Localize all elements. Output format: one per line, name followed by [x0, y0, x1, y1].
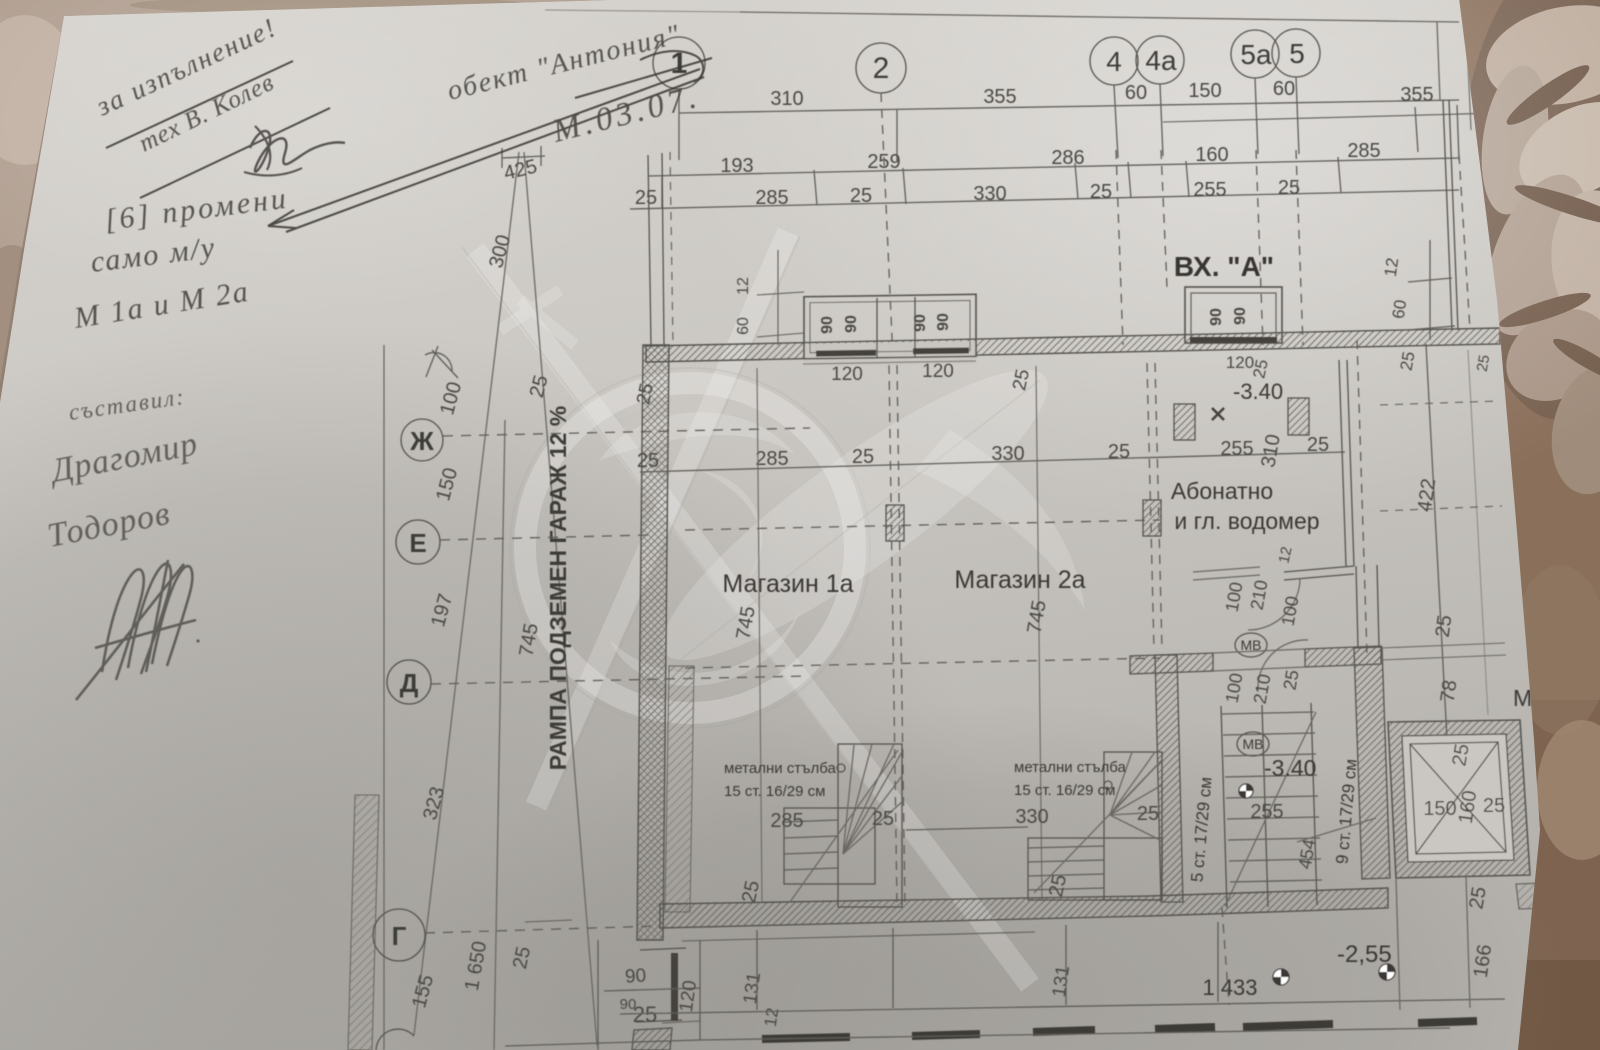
- svg-text:25: 25: [633, 381, 658, 406]
- svg-text:285: 285: [770, 810, 803, 832]
- svg-text:25: 25: [633, 1002, 657, 1027]
- svg-text:285: 285: [755, 448, 788, 470]
- svg-text:60: 60: [1125, 82, 1147, 104]
- svg-text:Д: Д: [400, 668, 419, 698]
- svg-text:Е: Е: [409, 528, 426, 558]
- svg-text:25: 25: [635, 187, 657, 209]
- svg-text:12: 12: [761, 1007, 782, 1028]
- svg-text:286: 286: [1051, 147, 1084, 169]
- svg-text:160: 160: [1195, 144, 1228, 166]
- svg-text:2: 2: [873, 52, 890, 85]
- svg-text:330: 330: [991, 443, 1024, 465]
- svg-text:60: 60: [1389, 299, 1410, 320]
- svg-text:60: 60: [1273, 78, 1295, 100]
- svg-text:Г: Г: [392, 921, 407, 951]
- svg-text:4а: 4а: [1145, 45, 1177, 76]
- svg-text:-3.40: -3.40: [1233, 379, 1283, 404]
- svg-text:5а: 5а: [1240, 39, 1272, 70]
- svg-text:90: 90: [935, 313, 952, 331]
- svg-text:25: 25: [1009, 367, 1034, 392]
- svg-text:255: 255: [1193, 179, 1226, 201]
- svg-text:60: 60: [735, 317, 752, 335]
- svg-text:25: 25: [738, 879, 764, 905]
- svg-text:25: 25: [1090, 181, 1112, 203]
- svg-text:Магазин 1а: Магазин 1а: [722, 570, 853, 598]
- svg-text:ВХ. "А": ВХ. "А": [1174, 251, 1274, 282]
- svg-text:131: 131: [1049, 964, 1074, 998]
- svg-text:25: 25: [1465, 885, 1491, 911]
- svg-text:15 ст. 16/29 см: 15 ст. 16/29 см: [1014, 782, 1115, 799]
- svg-text:422: 422: [1414, 477, 1440, 513]
- svg-text:25: 25: [872, 808, 894, 830]
- svg-text:90: 90: [819, 316, 836, 334]
- svg-text:150: 150: [1423, 798, 1456, 820]
- svg-text:1 433: 1 433: [1202, 975, 1257, 1000]
- svg-text:150: 150: [1188, 80, 1221, 102]
- svg-text:330: 330: [973, 183, 1006, 205]
- svg-text:Ж: Ж: [409, 426, 434, 456]
- svg-text:4: 4: [1106, 46, 1122, 77]
- svg-text:78: 78: [1437, 679, 1462, 704]
- svg-text:25: 25: [1045, 873, 1071, 899]
- svg-text:90: 90: [1208, 308, 1225, 326]
- svg-text:120: 120: [676, 979, 701, 1013]
- svg-text:25: 25: [1137, 803, 1159, 825]
- svg-text:МВ: МВ: [1243, 736, 1264, 752]
- svg-text:Абонатно: Абонатно: [1171, 478, 1273, 504]
- svg-text:355: 355: [983, 86, 1016, 108]
- svg-text:15 ст. 16/29 см: 15 ст. 16/29 см: [724, 783, 825, 800]
- svg-text:25: 25: [1483, 795, 1505, 817]
- svg-text:25: 25: [1307, 434, 1329, 456]
- svg-text:метални стълба: метални стълба: [724, 760, 837, 777]
- svg-text:355: 355: [1400, 84, 1433, 106]
- svg-text:25: 25: [1280, 668, 1303, 691]
- svg-text:330: 330: [1015, 806, 1048, 828]
- svg-text:-2,55: -2,55: [1337, 941, 1392, 968]
- svg-text:12: 12: [735, 277, 752, 295]
- svg-text:и гл. водомер: и гл. водомер: [1174, 508, 1319, 534]
- svg-text:12: 12: [1276, 545, 1296, 565]
- svg-text:-3.40: -3.40: [1264, 755, 1316, 781]
- svg-text:285: 285: [755, 187, 788, 209]
- svg-text:90: 90: [1232, 307, 1249, 325]
- svg-text:25: 25: [1432, 614, 1457, 639]
- svg-text:25: 25: [1249, 358, 1272, 380]
- svg-text:25: 25: [1108, 441, 1130, 463]
- svg-text:метални стълба: метални стълба: [1014, 759, 1127, 776]
- svg-text:90: 90: [912, 314, 929, 332]
- svg-text:25: 25: [1448, 742, 1474, 768]
- svg-text:5: 5: [1289, 38, 1305, 69]
- svg-text:255: 255: [1220, 438, 1253, 460]
- svg-text:25: 25: [1474, 354, 1494, 373]
- svg-text:193: 193: [720, 155, 753, 177]
- svg-text:РАМПА ПОДЗЕМЕН ГАРАЖ 12 %: РАМПА ПОДЗЕМЕН ГАРАЖ 12 %: [545, 406, 571, 770]
- svg-text:120: 120: [922, 361, 954, 382]
- svg-text:25: 25: [637, 450, 659, 472]
- svg-text:285: 285: [1347, 140, 1380, 162]
- svg-text:Магазин 2а: Магазин 2а: [954, 566, 1085, 594]
- svg-text:25: 25: [509, 945, 535, 971]
- svg-text:160: 160: [1455, 789, 1481, 825]
- svg-text:120: 120: [831, 364, 863, 385]
- svg-text:25: 25: [852, 446, 874, 468]
- svg-text:90: 90: [843, 315, 860, 333]
- svg-text:131: 131: [740, 971, 765, 1005]
- svg-text:166: 166: [1470, 943, 1496, 979]
- svg-text:310: 310: [770, 88, 803, 110]
- svg-text:12: 12: [1381, 257, 1402, 278]
- svg-text:255: 255: [1250, 801, 1283, 823]
- svg-text:25: 25: [850, 185, 872, 207]
- svg-text:25: 25: [1397, 350, 1419, 372]
- svg-text:90: 90: [624, 965, 647, 987]
